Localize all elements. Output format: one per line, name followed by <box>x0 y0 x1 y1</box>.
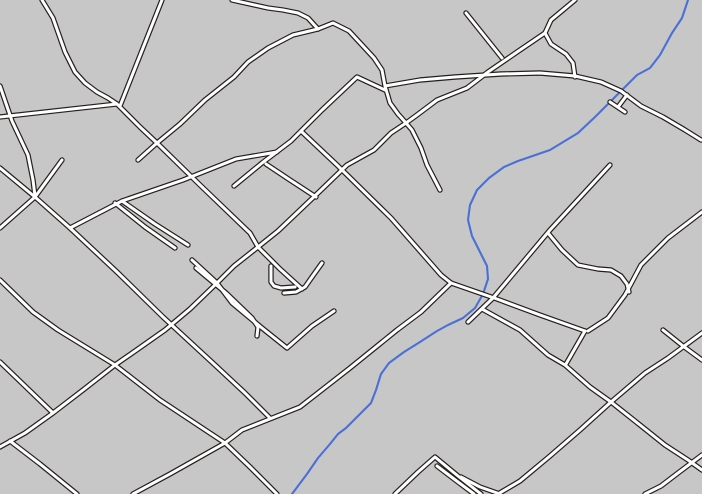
map-viewport[interactable] <box>0 0 702 494</box>
map-background <box>0 0 702 494</box>
map-canvas[interactable] <box>0 0 702 494</box>
